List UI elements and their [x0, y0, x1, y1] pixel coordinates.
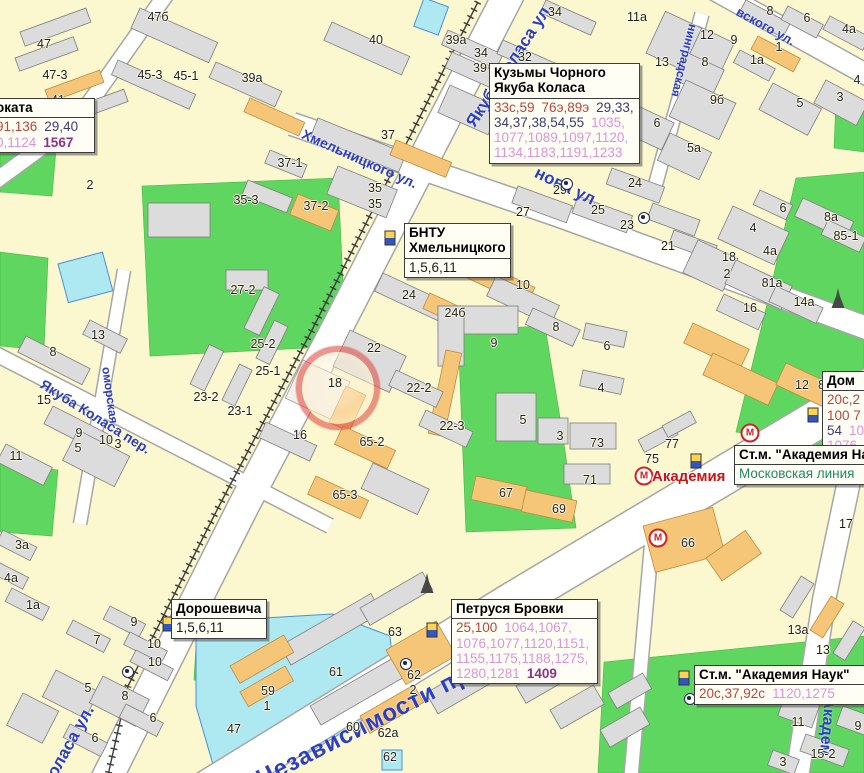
building-number: 25-2: [250, 337, 275, 351]
building-number: 2: [87, 178, 94, 192]
building-number: 6: [654, 116, 661, 130]
building-number: 23-2: [193, 390, 218, 404]
building-number: 65-3: [332, 488, 357, 502]
callout-routes: Московская линия: [735, 465, 864, 483]
building-number: 1а: [26, 598, 40, 612]
building-number: 81а: [762, 276, 783, 290]
building-number: 62: [383, 750, 397, 764]
callout-routes: 91,13629,400,11241567: [0, 118, 94, 152]
building-number: 59: [261, 684, 275, 698]
building-number: 85-1: [833, 229, 858, 243]
building-number: 13: [655, 55, 669, 69]
building-number: 47: [227, 722, 241, 736]
callout-routes: 20с,37,92с1120,1275: [695, 685, 864, 703]
route-numbers: 1035,: [591, 115, 625, 130]
building-number: 4а: [842, 22, 856, 36]
building-number: 3: [557, 429, 564, 443]
callout-title: Петруся Бровки: [452, 600, 597, 619]
building-number: 8: [122, 689, 129, 703]
building-number: 11: [10, 449, 23, 463]
building-number: 8а: [824, 210, 838, 224]
building-number: 8: [767, 4, 774, 18]
building-number: 23-1: [227, 404, 252, 418]
building-number: 3: [780, 755, 787, 769]
building-number: 27: [516, 205, 530, 219]
route-numbers: 20с,37,92с: [699, 686, 765, 701]
building-number: 15: [37, 393, 51, 407]
building-number: 16: [293, 428, 307, 442]
building-number: 35: [368, 181, 382, 195]
building-number: 22-3: [439, 419, 464, 433]
building-number: 13: [816, 643, 830, 657]
callout-title: Ст.м. "Академия Наук": [695, 666, 864, 685]
building-number: 62а: [378, 726, 399, 740]
building-number: 37-2: [303, 199, 328, 213]
callout-routes: 1,5,6,11: [405, 259, 510, 277]
building-number: 1: [264, 699, 271, 713]
route-numbers: 1,5,6,11: [176, 620, 224, 635]
route-numbers: 1409: [527, 666, 557, 681]
building-number: 32: [518, 50, 532, 64]
route-numbers: 1120,1275: [772, 686, 835, 701]
callout-title: Дорошевича: [172, 600, 266, 619]
tram-stop-icon[interactable]: [385, 231, 396, 246]
building-number: 10: [99, 433, 113, 447]
building-number: 10: [147, 637, 161, 651]
street-label-kolasa-st-fragment: Коласа ул.: [38, 702, 99, 773]
callout-routes: 25,1001064,1067,1076,1077,1120,1151,1155…: [452, 619, 597, 683]
building-number: 5: [75, 441, 82, 455]
building-number: 4: [854, 73, 861, 87]
building-number: 6: [804, 11, 811, 25]
building-number: 66: [681, 536, 695, 550]
building-number: 65-2: [359, 435, 384, 449]
building-number: 67: [499, 486, 513, 500]
building-number: 22: [367, 341, 381, 355]
map-viewport[interactable]: Якуба Коласа ул.Хмельницкого ул.нова ул.…: [0, 0, 864, 773]
building-number: 61: [329, 665, 343, 679]
building-number: 34: [548, 5, 562, 19]
tower-icon[interactable]: [832, 288, 845, 308]
bntu-callout: БНТУХмельницкого1,5,6,11: [404, 223, 511, 278]
callout-title: оката: [0, 99, 94, 118]
route-numbers: 33с,59: [494, 100, 535, 115]
route-numbers: 91,136: [0, 119, 37, 134]
building-number: 5: [520, 413, 527, 427]
building-number: 47: [37, 37, 51, 51]
building-number: 71: [583, 473, 597, 487]
building-number: 37-1: [277, 156, 302, 170]
building-number: 12: [795, 378, 809, 392]
academia-station-callout: Ст.м. "Академия НаМосковская линия: [734, 445, 864, 485]
building-number: 37: [381, 128, 395, 142]
building-number: 35: [368, 197, 382, 211]
building-number: 75: [645, 452, 659, 466]
building-number: 9: [76, 426, 83, 440]
building-number: 11а: [627, 10, 647, 24]
map-overlay: Якуба Коласа ул.Хмельницкого ул.нова ул.…: [0, 0, 864, 773]
tram-stop-icon[interactable]: [691, 454, 702, 469]
building-number: 47-3: [42, 68, 67, 82]
building-number: 34: [474, 46, 488, 60]
route-numbers: 1076,1077,1120,1151,: [456, 636, 589, 651]
building-number: 9: [131, 615, 138, 629]
academia-nauk-callout: Ст.м. "Академия Наук"20с,37,92с1120,1275: [694, 665, 864, 705]
building-number: 10: [148, 655, 162, 669]
building-number: 27-2: [230, 283, 255, 297]
building-number: 4: [750, 221, 757, 235]
building-number: 39а: [446, 33, 467, 47]
building-number: 8: [702, 55, 709, 69]
building-number: 2: [724, 267, 731, 281]
building-number: 21: [661, 239, 675, 253]
building-number: 3а: [15, 538, 29, 552]
building-number: 16: [743, 301, 757, 315]
building-number: 7: [94, 633, 101, 647]
building-number: 9: [491, 336, 498, 350]
building-number: 35-3: [233, 193, 258, 207]
callout-title: Дом: [823, 372, 864, 391]
building-number: 2: [410, 683, 417, 697]
callout-routes: 33с,5976э,89э29,33,34,37,38,54,551035,10…: [490, 99, 639, 163]
street-label-yakuba-kolasa-lane: Якуба Коласа пер.: [38, 376, 154, 457]
building-number: 9: [855, 719, 862, 733]
street-label-khmelnitskogo-st: Хмельницкого ул.: [299, 126, 419, 191]
building-number: 5: [797, 96, 804, 110]
building-number: 17: [839, 517, 853, 531]
building-number: 11: [792, 715, 805, 729]
metro-icon[interactable]: М: [649, 529, 668, 548]
building-number: 4а: [763, 244, 777, 258]
building-number: 45-3: [137, 68, 162, 82]
building-number: 18: [328, 376, 342, 390]
building-number: 8: [553, 320, 560, 334]
route-numbers: 1155,1175,1188,1275,: [456, 651, 588, 666]
prokat-callout: оката91,13629,400,11241567: [0, 98, 95, 153]
building-number: 3: [115, 437, 122, 451]
petrusya-brovki-callout: Петруся Бровки25,1001064,1067,1076,1077,…: [451, 599, 598, 684]
route-numbers: 54: [827, 423, 842, 438]
route-numbers: 25,100: [456, 620, 497, 635]
route-numbers: 0,1124: [0, 135, 36, 150]
poi-dot-icon[interactable]: [638, 212, 650, 224]
building-number: 4а: [4, 571, 18, 585]
building-number: 24: [628, 176, 642, 190]
building-number: 5: [85, 681, 92, 695]
building-number: 23: [620, 218, 634, 232]
building-number: 24: [402, 288, 416, 302]
building-number: 4: [598, 381, 605, 395]
building-number: 60: [346, 720, 360, 734]
building-number: 62: [407, 668, 421, 682]
building-number: 3: [837, 90, 844, 104]
building-number: 9б: [710, 93, 724, 107]
building-number: 39а: [242, 71, 263, 85]
building-number: 24б: [444, 306, 465, 320]
building-number: 6: [92, 731, 99, 745]
building-number: 5а: [687, 141, 701, 155]
building-number: 12: [700, 28, 714, 42]
building-number: 6: [604, 339, 611, 353]
building-number: 40: [369, 33, 383, 47]
route-numbers: 20с,2: [827, 392, 860, 407]
callout-routes: 1,5,6,11: [172, 619, 266, 637]
route-numbers: 29,33,: [596, 100, 634, 115]
building-number: 6: [780, 201, 787, 215]
poi-dot-icon[interactable]: [400, 658, 412, 670]
route-numbers: 76э,89э: [542, 100, 590, 115]
poi-dot-icon[interactable]: [561, 178, 573, 190]
metro-station-name-label: Академия: [652, 468, 725, 485]
route-numbers: 1,5,6,11: [409, 260, 457, 275]
building-number: 1а: [750, 53, 764, 67]
callout-title: Ст.м. "Академия На: [735, 446, 864, 465]
route-numbers: 10: [849, 423, 864, 438]
tram-stop-icon[interactable]: [679, 671, 690, 686]
callout-title: Кузьмы ЧорногоЯкуба Коласа: [490, 64, 639, 99]
route-numbers: 29,40: [44, 119, 78, 134]
tram-stop-icon[interactable]: [427, 623, 438, 638]
building-number: 73: [590, 436, 604, 450]
tram-stop-icon[interactable]: [808, 408, 819, 423]
route-numbers: 1134,1183,1191,1233: [494, 145, 622, 160]
building-number: 13а: [788, 623, 809, 637]
route-numbers: 1567: [43, 135, 73, 150]
route-numbers: 1280,1281: [456, 666, 520, 681]
building-number: 18: [722, 250, 736, 264]
street-label-leningradskaya-st-fragment: нинградская: [668, 23, 700, 99]
callout-title: БНТУХмельницкого: [405, 224, 510, 259]
building-number: 69: [552, 502, 566, 516]
building-number: 10: [516, 278, 530, 292]
metro-icon[interactable]: М: [635, 467, 654, 486]
route-numbers: 1064,1067,: [504, 620, 572, 635]
route-numbers: 100 7: [827, 408, 861, 423]
building-number: 15-2: [810, 747, 835, 761]
poi-dot-icon[interactable]: [122, 666, 134, 678]
building-number: 25: [591, 203, 605, 217]
tower-icon[interactable]: [421, 573, 434, 593]
building-number: 39: [473, 61, 487, 75]
building-number: 9: [731, 33, 738, 47]
building-number: 45-1: [173, 69, 198, 83]
building-number: 8: [50, 345, 57, 359]
building-number: 22-2: [406, 381, 431, 395]
route-numbers: Московская линия: [739, 466, 855, 481]
building-number: 77: [665, 437, 679, 451]
building-number: 63: [388, 625, 402, 639]
doroshevicha-callout: Дорошевича1,5,6,11: [171, 599, 267, 639]
kuzmy-chornogo-callout: Кузьмы ЧорногоЯкуба Коласа33с,5976э,89э2…: [489, 63, 640, 164]
building-number: 25-1: [255, 364, 280, 378]
route-numbers: 34,37,38,54,55: [494, 115, 584, 130]
building-number: 1: [776, 40, 783, 54]
building-number: 6: [150, 711, 157, 725]
metro-icon[interactable]: М: [741, 424, 760, 443]
building-number: 47б: [147, 10, 168, 24]
building-number: 13: [91, 328, 105, 342]
building-number: 14а: [794, 295, 815, 309]
route-numbers: 1077,1089,1097,1120,: [494, 130, 628, 145]
